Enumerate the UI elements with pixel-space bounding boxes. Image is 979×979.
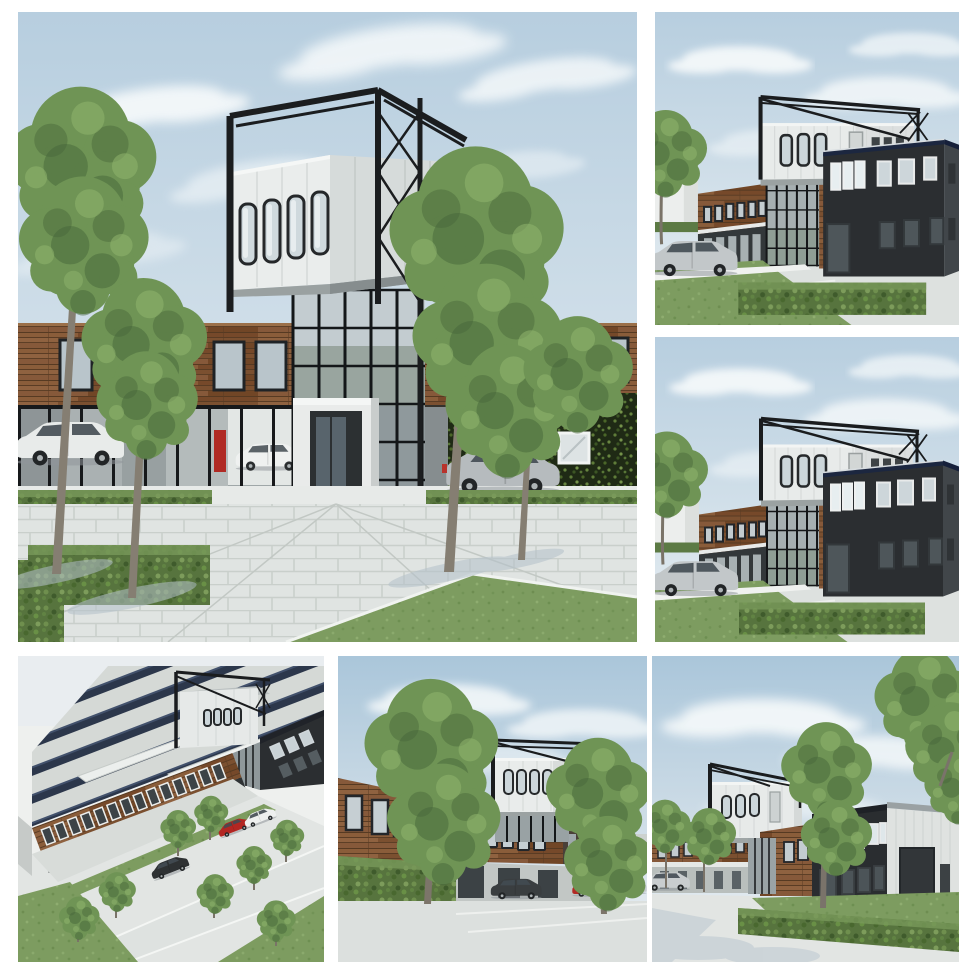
ground: [652, 892, 959, 962]
red-vending-box: [214, 430, 226, 472]
panel-corner-view-b: [655, 337, 959, 642]
entrance-portal: [293, 398, 379, 486]
panel-corner-view-a: [655, 12, 959, 325]
scene-aerial-view: [18, 656, 324, 962]
loading-door: [900, 848, 934, 898]
panel-driveway-view: [652, 656, 959, 962]
scene-corner-view-a: [655, 12, 959, 325]
scene-corner-view-b: [655, 337, 959, 642]
scene-front-elevation: [18, 12, 637, 642]
scene-street-view: [338, 656, 647, 962]
street: [338, 901, 647, 962]
scene-driveway-view: [652, 656, 959, 962]
panel-front-elevation: [18, 12, 637, 642]
side-door: [940, 864, 950, 896]
panel-street-view: [338, 656, 647, 962]
panel-aerial-view: [18, 656, 324, 962]
collage-canvas: [0, 0, 979, 979]
